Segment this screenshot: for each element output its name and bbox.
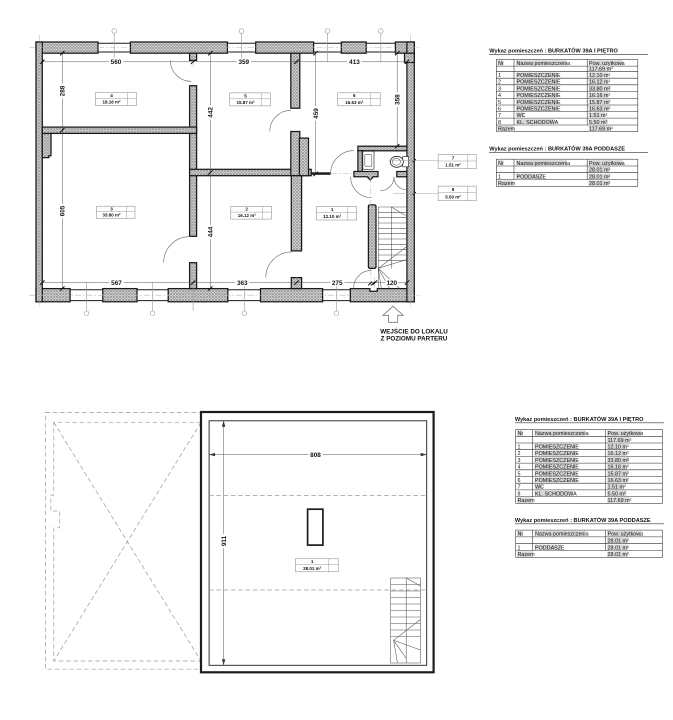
svg-text:Pow. użytkowa: Pow. użytkowa [608, 532, 644, 538]
svg-text:2: 2 [518, 451, 521, 457]
svg-text:POMIESZCZENIE: POMIESZCZENIE [517, 73, 561, 79]
svg-text:Razem: Razem [518, 552, 536, 558]
svg-text:28.01 m²: 28.01 m² [608, 539, 629, 545]
svg-text:33.80 m²: 33.80 m² [589, 86, 610, 92]
svg-text:16.63 m²: 16.63 m² [589, 107, 610, 113]
svg-text:WC: WC [517, 113, 526, 119]
svg-text:1: 1 [518, 545, 521, 551]
svg-text:7: 7 [452, 156, 455, 161]
svg-text:POMIESZCZENIE: POMIESZCZENIE [535, 465, 579, 471]
svg-text:275: 275 [332, 280, 343, 287]
svg-text:442: 442 [208, 107, 215, 118]
svg-text:Wykaz pomieszczeń : BURKATÓW 3: Wykaz pomieszczeń : BURKATÓW 39A PODDASZ… [489, 144, 625, 152]
svg-text:117.69 m²: 117.69 m² [589, 126, 613, 132]
svg-text:28.01 m²: 28.01 m² [608, 552, 629, 558]
svg-text:5.50 m²: 5.50 m² [589, 120, 607, 126]
svg-text:359: 359 [238, 59, 249, 66]
svg-text:1: 1 [498, 73, 501, 79]
svg-text:6: 6 [498, 107, 501, 113]
svg-text:1: 1 [311, 559, 314, 564]
svg-text:POMIESZCZENIE: POMIESZCZENIE [535, 451, 579, 457]
svg-text:120: 120 [386, 280, 397, 287]
svg-text:5.50 m²: 5.50 m² [608, 491, 626, 497]
svg-text:16.12 m²: 16.12 m² [589, 80, 610, 86]
svg-text:567: 567 [111, 280, 122, 287]
svg-text:363: 363 [237, 280, 248, 287]
svg-text:Nazwa pomieszczenia: Nazwa pomieszczenia [535, 532, 589, 538]
svg-text:WEJŚCIE DO LOKALU: WEJŚCIE DO LOKALU [380, 327, 448, 336]
svg-text:6: 6 [353, 93, 356, 98]
svg-text:117.69 m²: 117.69 m² [608, 498, 632, 504]
svg-text:POMIESZCZENIE: POMIESZCZENIE [535, 445, 579, 451]
svg-text:605: 605 [60, 205, 67, 216]
svg-text:15.87 m²: 15.87 m² [608, 471, 629, 477]
svg-text:5: 5 [518, 471, 521, 477]
svg-text:358: 358 [395, 94, 402, 105]
svg-text:3: 3 [518, 458, 521, 464]
svg-text:2: 2 [245, 207, 248, 212]
svg-text:PODDASZE: PODDASZE [517, 174, 547, 180]
svg-text:16.16 m²: 16.16 m² [589, 93, 610, 99]
svg-text:28.01 m²: 28.01 m² [589, 181, 610, 187]
svg-text:33.80 m²: 33.80 m² [102, 213, 121, 218]
svg-text:POMIESZCZENIE: POMIESZCZENIE [535, 478, 579, 484]
svg-text:POMIESZCZENIE: POMIESZCZENIE [517, 100, 561, 106]
svg-text:Wykaz pomieszczeń : BURKATÓW 3: Wykaz pomieszczeń : BURKATÓW 39A I PIĘTR… [489, 47, 618, 55]
svg-text:16.12 m²: 16.12 m² [238, 213, 257, 218]
svg-text:911: 911 [221, 535, 228, 546]
svg-text:560: 560 [111, 59, 122, 66]
svg-text:4: 4 [498, 93, 501, 99]
svg-text:288: 288 [60, 85, 67, 96]
svg-text:4: 4 [110, 93, 113, 98]
svg-text:5: 5 [244, 93, 247, 98]
svg-text:5.50 m²: 5.50 m² [445, 195, 461, 200]
svg-text:12.10 m²: 12.10 m² [323, 214, 342, 219]
svg-text:Pow. użytkowa: Pow. użytkowa [589, 161, 625, 167]
svg-text:PODDASZE: PODDASZE [535, 545, 565, 551]
svg-text:Nazwa pomieszczenia: Nazwa pomieszczenia [517, 61, 571, 67]
svg-text:Nazwa pomieszczenia: Nazwa pomieszczenia [517, 161, 571, 167]
svg-text:Razem: Razem [498, 181, 516, 187]
svg-text:POMIESZCZENIE: POMIESZCZENIE [535, 458, 579, 464]
svg-text:8: 8 [498, 120, 501, 126]
svg-text:1: 1 [518, 445, 521, 451]
svg-text:Nr: Nr [518, 532, 524, 538]
svg-text:WC: WC [535, 485, 544, 491]
svg-text:117.69 m²: 117.69 m² [589, 67, 613, 73]
svg-text:16.63 m²: 16.63 m² [608, 478, 629, 484]
svg-text:7: 7 [518, 485, 521, 491]
svg-text:2: 2 [498, 80, 501, 86]
svg-text:8: 8 [518, 491, 521, 497]
svg-text:28.01 m²: 28.01 m² [589, 174, 610, 180]
svg-text:POMIESZCZENIE: POMIESZCZENIE [517, 107, 561, 113]
svg-text:16.16 m²: 16.16 m² [608, 465, 629, 471]
svg-text:3: 3 [498, 86, 501, 92]
svg-text:Nr: Nr [518, 431, 524, 437]
svg-text:POMIESZCZENIE: POMIESZCZENIE [535, 471, 579, 477]
svg-text:459: 459 [313, 108, 320, 119]
svg-text:5: 5 [498, 100, 501, 106]
svg-text:16.63 m²: 16.63 m² [345, 100, 364, 105]
svg-text:POMIESZCZENIE: POMIESZCZENIE [517, 93, 561, 99]
svg-text:POMIESZCZENIE: POMIESZCZENIE [517, 80, 561, 86]
svg-text:Wykaz pomieszczeń : BURKATÓW 3: Wykaz pomieszczeń : BURKATÓW 39A I PIĘTR… [515, 415, 644, 423]
svg-text:Pow. użytkowa: Pow. użytkowa [608, 431, 644, 437]
svg-text:15.87 m²: 15.87 m² [236, 100, 255, 105]
svg-text:3: 3 [110, 206, 113, 211]
svg-text:KL. SCHODOWA: KL. SCHODOWA [517, 120, 559, 126]
svg-text:28.01 m²: 28.01 m² [608, 545, 629, 551]
svg-text:444: 444 [208, 226, 215, 237]
svg-text:18.16 m²: 18.16 m² [102, 100, 121, 105]
svg-text:413: 413 [349, 59, 360, 66]
svg-text:1: 1 [331, 207, 334, 212]
svg-text:28.01 m²: 28.01 m² [589, 168, 610, 174]
svg-text:1.51 m²: 1.51 m² [589, 113, 607, 119]
svg-text:Razem: Razem [518, 498, 536, 504]
svg-text:8: 8 [452, 187, 455, 192]
svg-text:Nr: Nr [498, 161, 504, 167]
svg-text:16.12 m²: 16.12 m² [608, 451, 629, 457]
svg-text:6: 6 [518, 478, 521, 484]
svg-text:7: 7 [498, 113, 501, 119]
svg-text:12.10 m²: 12.10 m² [608, 445, 629, 451]
svg-text:Z POZIOMU PARTERU: Z POZIOMU PARTERU [381, 336, 448, 343]
svg-text:4: 4 [518, 465, 521, 471]
svg-text:808: 808 [310, 452, 321, 459]
svg-text:KL. SCHODOWA: KL. SCHODOWA [535, 491, 577, 497]
svg-text:117.69 m²: 117.69 m² [608, 438, 632, 444]
svg-text:Nazwa pomieszczenia: Nazwa pomieszczenia [535, 431, 589, 437]
svg-text:28.01 m²: 28.01 m² [303, 566, 322, 571]
svg-text:1.51 m²: 1.51 m² [445, 163, 461, 168]
svg-text:1.51 m²: 1.51 m² [608, 485, 626, 491]
svg-text:33.80 m²: 33.80 m² [608, 458, 629, 464]
svg-text:Wykaz pomieszczeń : BURKATÓW 3: Wykaz pomieszczeń : BURKATÓW 39A PODDASZ… [515, 516, 651, 524]
svg-text:1: 1 [498, 174, 501, 180]
svg-text:Nr: Nr [498, 61, 504, 67]
svg-text:POMIESZCZENIE: POMIESZCZENIE [517, 86, 561, 92]
svg-text:Razem: Razem [498, 126, 516, 132]
svg-text:15.87 m²: 15.87 m² [589, 100, 610, 106]
svg-text:12.10 m²: 12.10 m² [589, 73, 610, 79]
